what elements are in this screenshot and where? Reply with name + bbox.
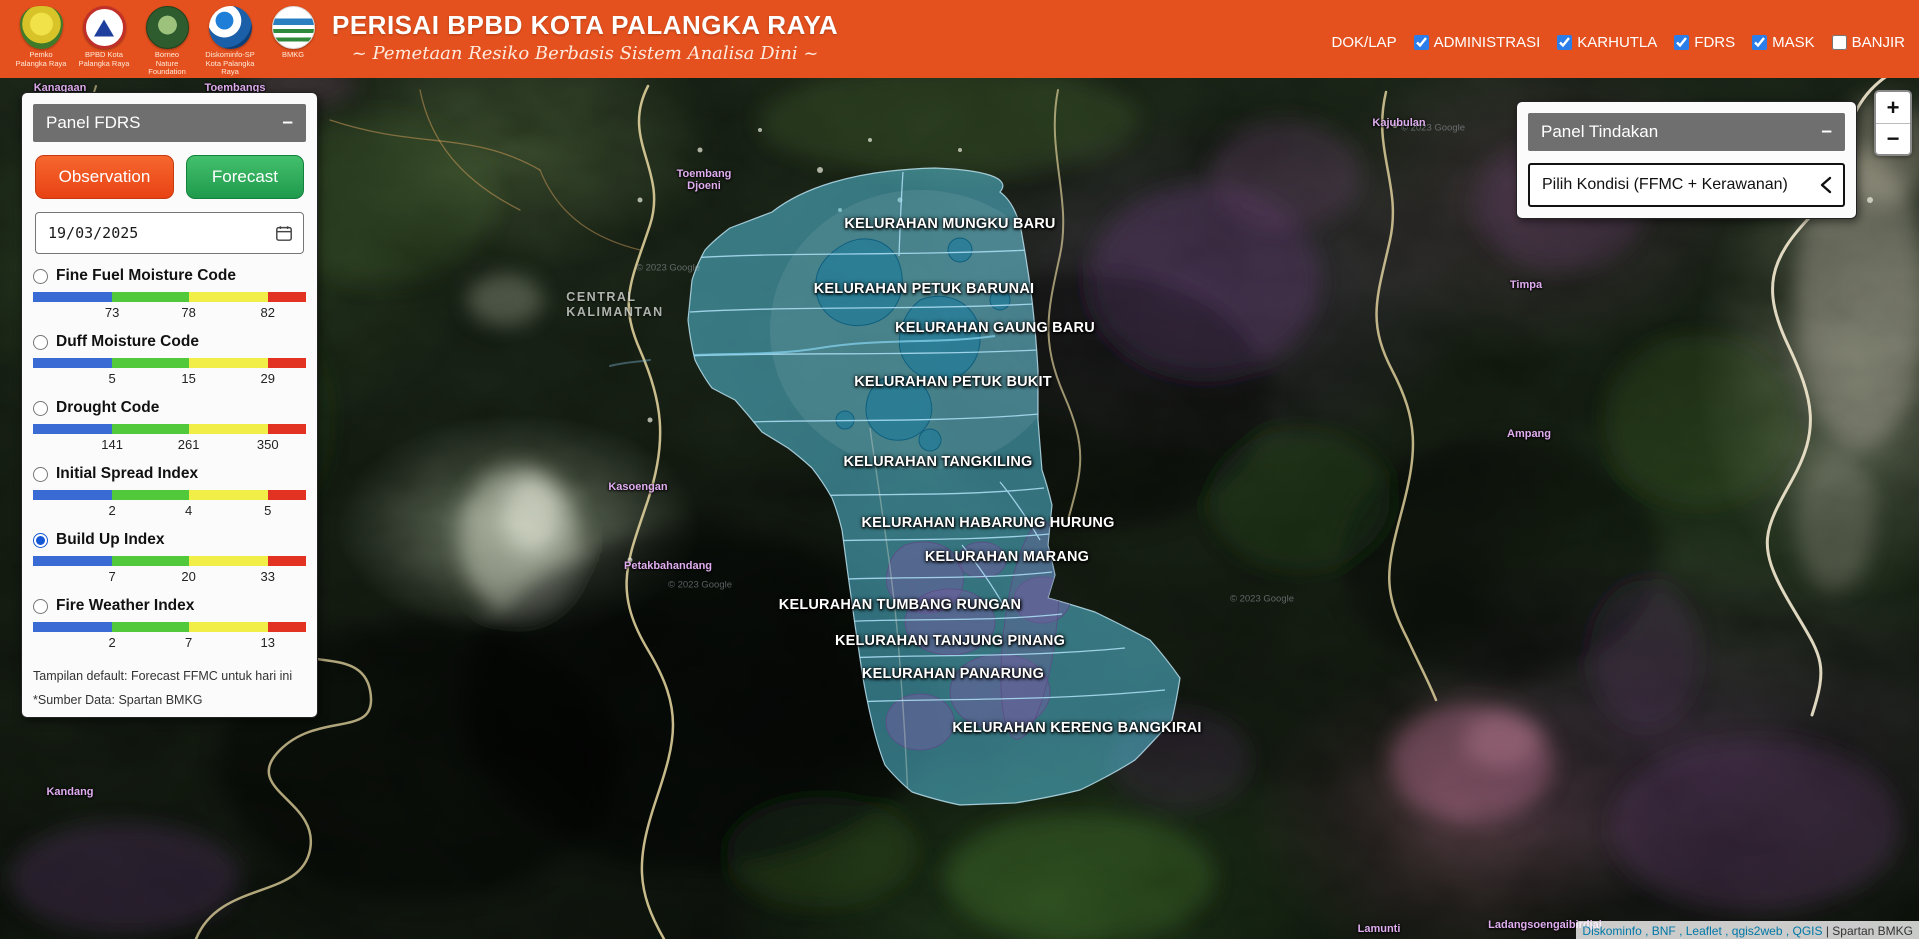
observation-button[interactable]: Observation	[35, 155, 174, 199]
fdrs-index-list: Fine Fuel Moisture Code737882Duff Moistu…	[33, 267, 306, 650]
nav-checkbox-administrasi[interactable]	[1414, 35, 1429, 50]
nav-checkbox-karhutla[interactable]	[1557, 35, 1572, 50]
scale-segment	[268, 556, 306, 566]
logo-caption: Pemko Palangka Raya	[10, 51, 72, 68]
pemko-logo-icon	[20, 6, 63, 49]
scale-segment	[189, 490, 268, 500]
tindakan-panel-title: Panel Tindakan	[1541, 122, 1658, 142]
forecast-button[interactable]: Forecast	[186, 155, 304, 199]
zoom-control: + −	[1874, 90, 1912, 156]
scale-thresholds: 737882	[33, 305, 306, 320]
scale-segment	[112, 556, 188, 566]
nav-item-karhutla[interactable]: KARHUTLA	[1557, 34, 1657, 51]
nav-label: FDRS	[1694, 34, 1735, 51]
tindakan-panel: Panel Tindakan – Pilih Kondisi (FFMC + K…	[1516, 101, 1857, 219]
scale-bar	[33, 292, 306, 302]
index-radio-row-initial-spread-index[interactable]: Initial Spread Index	[33, 465, 306, 483]
threshold-value: 13	[261, 635, 275, 650]
scale-segment	[189, 622, 268, 632]
threshold-value: 141	[101, 437, 123, 452]
threshold-value: 73	[105, 305, 119, 320]
threshold-value: 29	[261, 371, 275, 386]
collapse-minus-icon[interactable]: –	[1821, 125, 1832, 139]
index-radio-row-fine-fuel-moisture-code[interactable]: Fine Fuel Moisture Code	[33, 267, 306, 285]
index-label: Drought Code	[56, 399, 159, 417]
bnf-logo-icon	[146, 6, 189, 49]
index-radio-row-duff-moisture-code[interactable]: Duff Moisture Code	[33, 333, 306, 351]
bmkg-logo-icon	[272, 6, 315, 49]
scale-segment	[112, 490, 188, 500]
threshold-value: 5	[109, 371, 116, 386]
app: CENTRAL KALIMANTAN Toembang DjoeniKasoen…	[0, 0, 1919, 939]
chevron-left-icon[interactable]	[1819, 176, 1833, 194]
threshold-value: 7	[185, 635, 192, 650]
scale-segment	[189, 424, 268, 434]
attribution-links[interactable]: Diskominfo , BNF , Leaflet , qgis2web , …	[1582, 924, 1825, 938]
scale-segment	[112, 292, 188, 302]
index-radio[interactable]	[33, 335, 48, 350]
map-attribution: Diskominfo , BNF , Leaflet , qgis2web , …	[1576, 921, 1919, 939]
bpbd-logo-icon	[83, 6, 126, 49]
logo-bnf: Borneo Nature Foundation	[142, 6, 192, 77]
index-build-up-index: Build Up Index72033	[33, 531, 306, 584]
scale-segment	[33, 292, 112, 302]
threshold-value: 15	[181, 371, 195, 386]
logo-caption: BPBD Kota Palangka Raya	[73, 51, 135, 68]
logo-bpbd: BPBD Kota Palangka Raya	[79, 6, 129, 77]
collapse-minus-icon[interactable]: –	[282, 116, 293, 130]
scale-segment	[268, 358, 306, 368]
index-fine-fuel-moisture-code: Fine Fuel Moisture Code737882	[33, 267, 306, 320]
scale-segment	[189, 556, 268, 566]
scale-segment	[33, 358, 112, 368]
scale-thresholds: 51529	[33, 371, 306, 386]
kondisi-dropdown[interactable]: Pilih Kondisi (FFMC + Kerawanan)	[1528, 163, 1845, 207]
nav-checkbox-fdrs[interactable]	[1674, 35, 1689, 50]
zoom-in-button[interactable]: +	[1876, 92, 1910, 123]
nav-checkbox-mask[interactable]	[1752, 35, 1767, 50]
mode-buttons: Observation Forecast	[35, 155, 304, 199]
index-label: Fire Weather Index	[56, 597, 194, 615]
index-label: Initial Spread Index	[56, 465, 198, 483]
scale-bar	[33, 556, 306, 566]
scale-bar	[33, 358, 306, 368]
nav-label: DOK/LAP	[1332, 34, 1397, 51]
app-title: PERISAI BPBD KOTA PALANGKA RAYA	[332, 10, 838, 41]
scale-segment	[189, 292, 268, 302]
threshold-value: 350	[257, 437, 279, 452]
nav-item-administrasi[interactable]: ADMINISTRASI	[1414, 34, 1541, 51]
app-subtitle: ~ Pemetaan Resiko Berbasis Sistem Analis…	[332, 43, 838, 64]
threshold-value: 5	[264, 503, 271, 518]
scale-thresholds: 141261350	[33, 437, 306, 452]
index-radio[interactable]	[33, 599, 48, 614]
index-radio-row-drought-code[interactable]: Drought Code	[33, 399, 306, 417]
fdrs-footnote-source: *Sumber Data: Spartan BMKG	[33, 693, 306, 707]
nav-label: ADMINISTRASI	[1434, 34, 1541, 51]
scale-segment	[268, 490, 306, 500]
index-radio[interactable]	[33, 269, 48, 284]
scale-thresholds: 2713	[33, 635, 306, 650]
fdrs-panel: Panel FDRS – Observation Forecast 19/03/…	[21, 92, 318, 718]
zoom-out-button[interactable]: −	[1876, 123, 1910, 154]
fdrs-footnote-default: Tampilan default: Forecast FFMC untuk ha…	[33, 669, 306, 683]
fdrs-panel-header[interactable]: Panel FDRS –	[33, 104, 306, 142]
header: Pemko Palangka RayaBPBD Kota Palangka Ra…	[0, 0, 1919, 78]
nav-label: BANJIR	[1852, 34, 1905, 51]
date-value: 19/03/2025	[48, 224, 138, 242]
index-radio[interactable]	[33, 533, 48, 548]
scale-bar	[33, 424, 306, 434]
scale-thresholds: 245	[33, 503, 306, 518]
index-label: Fine Fuel Moisture Code	[56, 267, 236, 285]
diskominfo-logo-icon	[209, 6, 252, 49]
logo-caption: BMKG	[262, 51, 324, 60]
fdrs-panel-title: Panel FDRS	[46, 113, 140, 133]
kondisi-label: Pilih Kondisi (FFMC + Kerawanan)	[1542, 176, 1788, 194]
attribution-suffix: | Spartan BMKG	[1826, 924, 1913, 938]
scale-segment	[33, 424, 112, 434]
logo-caption: Diskominfo-SP Kota Palangka Raya	[199, 51, 261, 77]
nav-item-fdrs[interactable]: FDRS	[1674, 34, 1735, 51]
scale-segment	[268, 424, 306, 434]
threshold-value: 261	[178, 437, 200, 452]
index-radio[interactable]	[33, 467, 48, 482]
index-fire-weather-index: Fire Weather Index2713	[33, 597, 306, 650]
tindakan-panel-header[interactable]: Panel Tindakan –	[1528, 113, 1845, 151]
index-duff-moisture-code: Duff Moisture Code51529	[33, 333, 306, 386]
index-radio-row-fire-weather-index[interactable]: Fire Weather Index	[33, 597, 306, 615]
threshold-value: 7	[109, 569, 116, 584]
index-label: Build Up Index	[56, 531, 165, 549]
threshold-value: 33	[261, 569, 275, 584]
scale-segment	[33, 622, 112, 632]
nav-item-mask[interactable]: MASK	[1752, 34, 1815, 51]
nav-item-banjir[interactable]: BANJIR	[1832, 34, 1905, 51]
scale-bar	[33, 622, 306, 632]
index-label: Duff Moisture Code	[56, 333, 199, 351]
threshold-value: 82	[261, 305, 275, 320]
scale-segment	[268, 292, 306, 302]
threshold-value: 2	[109, 503, 116, 518]
calendar-icon[interactable]	[275, 224, 293, 242]
logo-caption: Borneo Nature Foundation	[136, 51, 198, 77]
logo-bmkg: BMKG	[268, 6, 318, 77]
threshold-value: 4	[185, 503, 192, 518]
scale-segment	[112, 424, 188, 434]
title-block: PERISAI BPBD KOTA PALANGKA RAYA ~ Pemeta…	[332, 0, 838, 64]
index-radio-row-build-up-index[interactable]: Build Up Index	[33, 531, 306, 549]
nav-label: MASK	[1772, 34, 1815, 51]
index-initial-spread-index: Initial Spread Index245	[33, 465, 306, 518]
scale-segment	[189, 358, 268, 368]
nav-item-dok-lap[interactable]: DOK/LAP	[1332, 34, 1397, 51]
scale-segment	[112, 622, 188, 632]
scale-thresholds: 72033	[33, 569, 306, 584]
date-input[interactable]: 19/03/2025	[35, 212, 304, 254]
index-radio[interactable]	[33, 401, 48, 416]
threshold-value: 2	[109, 635, 116, 650]
nav-label: KARHUTLA	[1577, 34, 1657, 51]
nav-checkbox-banjir[interactable]	[1832, 35, 1847, 50]
threshold-value: 20	[181, 569, 195, 584]
logo-strip: Pemko Palangka RayaBPBD Kota Palangka Ra…	[0, 0, 318, 77]
scale-segment	[33, 556, 112, 566]
threshold-value: 78	[181, 305, 195, 320]
top-nav: DOK/LAPADMINISTRASIKARHUTLAFDRSMASKBANJI…	[1332, 34, 1905, 51]
scale-segment	[112, 358, 188, 368]
logo-diskominfo: Diskominfo-SP Kota Palangka Raya	[205, 6, 255, 77]
logo-pemko: Pemko Palangka Raya	[16, 6, 66, 77]
scale-segment	[33, 490, 112, 500]
scale-bar	[33, 490, 306, 500]
index-drought-code: Drought Code141261350	[33, 399, 306, 452]
scale-segment	[268, 622, 306, 632]
